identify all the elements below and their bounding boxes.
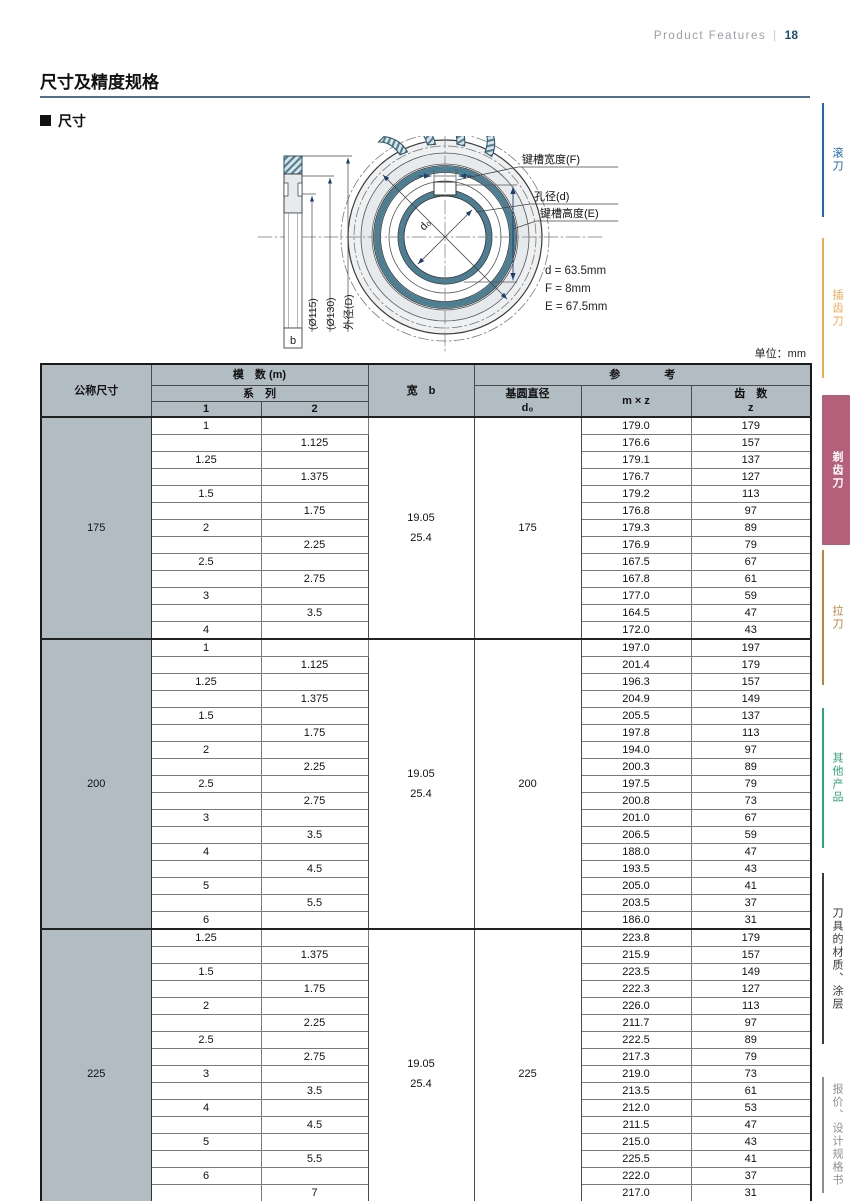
module-series1-cell: 4 [151, 1100, 261, 1117]
module-series1-cell [151, 1015, 261, 1032]
module-series1-cell: 1.5 [151, 486, 261, 503]
mxz-cell: 223.8 [581, 929, 691, 947]
module-series2-cell [261, 776, 368, 793]
module-series2-cell: 2.25 [261, 759, 368, 776]
header-series-1: 1 [151, 402, 261, 418]
module-series1-cell [151, 1117, 261, 1134]
table-row: 175119.0525.4175179.0179 [41, 417, 811, 435]
sidebar-tab[interactable]: 插齿刀 [822, 238, 850, 378]
module-series2-cell: 5.5 [261, 895, 368, 912]
teeth-count-cell: 179 [691, 417, 811, 435]
mxz-cell: 204.9 [581, 691, 691, 708]
module-series1-cell: 1.5 [151, 964, 261, 981]
module-series1-cell: 5 [151, 1134, 261, 1151]
teeth-count-cell: 41 [691, 878, 811, 895]
width-b-value: 19.05 [369, 511, 474, 525]
teeth-count-cell: 53 [691, 1100, 811, 1117]
teeth-count-cell: 113 [691, 998, 811, 1015]
teeth-count-cell: 47 [691, 605, 811, 622]
header-width-b: 宽 b [368, 364, 474, 417]
mxz-cell: 200.8 [581, 793, 691, 810]
module-series2-cell: 2.75 [261, 571, 368, 588]
module-series1-cell [151, 895, 261, 912]
teeth-count-cell: 59 [691, 827, 811, 844]
teeth-count-cell: 47 [691, 844, 811, 861]
teeth-count-cell: 197 [691, 639, 811, 657]
base-dia-cell: 175 [474, 417, 581, 639]
teeth-count-cell: 97 [691, 742, 811, 759]
sidebar-tab[interactable]: 刀具的材质、涂层 [822, 873, 850, 1044]
module-series2-cell [261, 622, 368, 640]
mxz-cell: 197.0 [581, 639, 691, 657]
module-series2-cell: 2.75 [261, 1049, 368, 1066]
teeth-count-cell: 137 [691, 452, 811, 469]
module-series2-cell [261, 554, 368, 571]
module-series1-cell [151, 691, 261, 708]
teeth-count-cell: 41 [691, 1151, 811, 1168]
module-series2-cell: 1.125 [261, 435, 368, 452]
mxz-cell: 167.8 [581, 571, 691, 588]
catalog-page: Product Features|18 尺寸及精度规格 尺寸 [0, 0, 850, 1201]
teeth-count-cell: 157 [691, 435, 811, 452]
module-series1-cell [151, 503, 261, 520]
mxz-cell: 201.4 [581, 657, 691, 674]
mxz-cell: 203.5 [581, 895, 691, 912]
base-dia-cell: 225 [474, 929, 581, 1201]
teeth-count-cell: 179 [691, 929, 811, 947]
mxz-cell: 188.0 [581, 844, 691, 861]
teeth-count-cell: 31 [691, 912, 811, 930]
module-series2-cell [261, 844, 368, 861]
module-series2-cell: 1.125 [261, 657, 368, 674]
module-series1-cell [151, 793, 261, 810]
page-number: 18 [785, 28, 798, 42]
value-F: F = 8mm [545, 283, 591, 295]
sidebar-tab[interactable]: 剃齿刀 [822, 395, 850, 545]
module-series2-cell: 3.5 [261, 827, 368, 844]
page-title: 尺寸及精度规格 [40, 68, 159, 93]
mxz-cell: 206.5 [581, 827, 691, 844]
module-series2-cell: 2.75 [261, 793, 368, 810]
width-b-value: 19.05 [369, 767, 474, 781]
teeth-count-cell: 43 [691, 1134, 811, 1151]
nominal-size-cell: 225 [41, 929, 151, 1201]
header-base-dia: 基圆直径 d₀ [474, 386, 581, 418]
mxz-cell: 179.2 [581, 486, 691, 503]
tab-label: 剃齿刀 [822, 451, 850, 490]
module-series2-cell: 5.5 [261, 1151, 368, 1168]
module-series1-cell: 6 [151, 1168, 261, 1185]
module-series1-cell [151, 981, 261, 998]
square-bullet-icon [40, 115, 51, 126]
module-series1-cell: 4 [151, 622, 261, 640]
module-series1-cell: 2 [151, 998, 261, 1015]
module-series1-cell [151, 605, 261, 622]
module-series1-cell: 3 [151, 1066, 261, 1083]
mxz-cell: 196.3 [581, 674, 691, 691]
module-series1-cell: 1.25 [151, 452, 261, 469]
header-mxz: m × z [581, 386, 691, 418]
module-series2-cell [261, 1168, 368, 1185]
header-divider: | [773, 30, 778, 42]
module-series2-cell [261, 417, 368, 435]
teeth-count-cell: 113 [691, 486, 811, 503]
teeth-count-cell: 79 [691, 1049, 811, 1066]
mxz-cell: 222.3 [581, 981, 691, 998]
module-series2-cell: 1.375 [261, 469, 368, 486]
mxz-cell: 211.5 [581, 1117, 691, 1134]
header-label: Product Features [654, 30, 766, 42]
teeth-count-cell: 31 [691, 1185, 811, 1201]
tab-accent-line [822, 103, 824, 217]
module-series1-cell: 3 [151, 588, 261, 605]
mxz-cell: 225.5 [581, 1151, 691, 1168]
mxz-cell: 201.0 [581, 810, 691, 827]
module-series1-cell [151, 1083, 261, 1100]
module-series1-cell [151, 435, 261, 452]
keyway-height-label: 键槽高度(E) [540, 206, 599, 220]
teeth-count-cell: 67 [691, 810, 811, 827]
tab-accent-line [822, 873, 824, 1044]
teeth-count-cell: 37 [691, 895, 811, 912]
module-series1-cell: 2.5 [151, 776, 261, 793]
module-series1-cell: 1 [151, 417, 261, 435]
mxz-cell: 226.0 [581, 998, 691, 1015]
width-b-cell: 19.0525.4 [368, 639, 474, 929]
teeth-count-cell: 73 [691, 793, 811, 810]
dim-130-label: (Ø130) [325, 297, 337, 330]
tab-label: 拉刀 [822, 605, 850, 631]
table-row: 200119.0525.4200197.0197 [41, 639, 811, 657]
tab-accent-line [822, 550, 824, 685]
module-series1-cell: 2.5 [151, 1032, 261, 1049]
module-series1-cell: 1.25 [151, 674, 261, 691]
module-series2-cell: 3.5 [261, 605, 368, 622]
module-series1-cell [151, 469, 261, 486]
tab-label: 刀具的材质、涂层 [822, 907, 850, 1011]
header-series-2: 2 [261, 402, 368, 418]
module-series2-cell [261, 998, 368, 1015]
module-series2-cell [261, 1032, 368, 1049]
section-heading-label: 尺寸 [58, 113, 86, 129]
mxz-cell: 193.5 [581, 861, 691, 878]
tab-label: 其他产品 [822, 752, 850, 804]
mxz-cell: 179.0 [581, 417, 691, 435]
module-series1-cell [151, 1151, 261, 1168]
module-series1-cell: 3 [151, 810, 261, 827]
module-series2-cell: 4.5 [261, 861, 368, 878]
section-heading: 尺寸 [40, 111, 86, 131]
teeth-count-cell: 137 [691, 708, 811, 725]
mxz-cell: 219.0 [581, 1066, 691, 1083]
teeth-count-cell: 157 [691, 947, 811, 964]
teeth-count-cell: 79 [691, 537, 811, 554]
module-series2-cell [261, 810, 368, 827]
teeth-count-cell: 37 [691, 1168, 811, 1185]
bore-dia-label: 孔径(d) [534, 190, 569, 203]
sidebar-tab[interactable]: 滚刀 [822, 103, 850, 217]
mxz-cell: 215.9 [581, 947, 691, 964]
tab-accent-line [822, 238, 824, 378]
module-series2-cell [261, 639, 368, 657]
nominal-size-cell: 175 [41, 417, 151, 639]
teeth-count-cell: 61 [691, 571, 811, 588]
mxz-cell: 217.0 [581, 1185, 691, 1201]
header-teeth-line2: z [692, 401, 811, 415]
width-b-cell: 19.0525.4 [368, 417, 474, 639]
keyway-width-label: 键槽宽度(F) [522, 152, 580, 166]
mxz-cell: 176.8 [581, 503, 691, 520]
header-series: 系 列 [151, 386, 368, 402]
module-series1-cell: 1.25 [151, 929, 261, 947]
module-series2-cell [261, 674, 368, 691]
module-series1-cell: 1 [151, 639, 261, 657]
module-series2-cell [261, 588, 368, 605]
table-section-175: 175119.0525.4175179.01791.125176.61571.2… [41, 417, 811, 639]
tab-label: 插齿刀 [822, 289, 850, 328]
module-series2-cell [261, 742, 368, 759]
teeth-count-cell: 179 [691, 657, 811, 674]
teeth-count-cell: 73 [691, 1066, 811, 1083]
teeth-count-cell: 47 [691, 1117, 811, 1134]
module-series2-cell [261, 486, 368, 503]
header-nominal: 公称尺寸 [41, 364, 151, 417]
mxz-cell: 223.5 [581, 964, 691, 981]
dimension-spec-table: 公称尺寸 模 数 (m) 宽 b 参 考 系 列 基圆直径 d₀ m × z 齿… [40, 363, 812, 1201]
module-series2-cell: 1.75 [261, 981, 368, 998]
module-series1-cell [151, 1049, 261, 1066]
table-section-225: 2251.2519.0525.4225223.81791.375215.9157… [41, 929, 811, 1201]
mxz-cell: 212.0 [581, 1100, 691, 1117]
module-series2-cell: 1.75 [261, 725, 368, 742]
page-header: Product Features|18 [654, 28, 798, 42]
teeth-count-cell: 67 [691, 554, 811, 571]
teeth-count-cell: 157 [691, 674, 811, 691]
mxz-cell: 194.0 [581, 742, 691, 759]
side-view: b (Ø115) (Ø130) 外径(D) [284, 156, 355, 348]
mxz-cell: 167.5 [581, 554, 691, 571]
mxz-cell: 179.3 [581, 520, 691, 537]
mxz-cell: 217.3 [581, 1049, 691, 1066]
table-section-200: 200119.0525.4200197.01971.125201.41791.2… [41, 639, 811, 929]
module-series1-cell [151, 1185, 261, 1201]
header-base-dia-line1: 基圆直径 [475, 387, 581, 401]
module-series2-cell [261, 520, 368, 537]
module-series2-cell: 2.25 [261, 537, 368, 554]
module-series1-cell [151, 725, 261, 742]
nominal-size-cell: 200 [41, 639, 151, 929]
header-module-group: 模 数 (m) [151, 364, 368, 386]
module-series1-cell: 2 [151, 742, 261, 759]
unit-label: 单位：mm [40, 345, 806, 361]
module-series2-cell [261, 708, 368, 725]
module-series2-cell: 1.75 [261, 503, 368, 520]
module-series1-cell [151, 657, 261, 674]
base-dia-cell: 200 [474, 639, 581, 929]
module-series2-cell: 7 [261, 1185, 368, 1201]
mxz-cell: 205.0 [581, 878, 691, 895]
mxz-cell: 211.7 [581, 1015, 691, 1032]
teeth-count-cell: 127 [691, 469, 811, 486]
module-series1-cell [151, 947, 261, 964]
teeth-count-cell: 113 [691, 725, 811, 742]
width-b-value: 25.4 [369, 787, 474, 801]
table-row: 2251.2519.0525.4225223.8179 [41, 929, 811, 947]
mxz-cell: 197.8 [581, 725, 691, 742]
mxz-cell: 176.6 [581, 435, 691, 452]
module-series2-cell: 1.375 [261, 947, 368, 964]
module-series2-cell [261, 452, 368, 469]
module-series2-cell: 4.5 [261, 1117, 368, 1134]
header-teeth-line1: 齿 数 [692, 387, 811, 401]
mxz-cell: 205.5 [581, 708, 691, 725]
sidebar-tab[interactable]: 其他产品 [822, 708, 850, 848]
dim-115-label: (Ø115) [307, 298, 319, 330]
module-series2-cell [261, 1066, 368, 1083]
module-series1-cell: 5 [151, 878, 261, 895]
teeth-count-cell: 89 [691, 1032, 811, 1049]
sidebar: 滚刀插齿刀剃齿刀拉刀其他产品刀具的材质、涂层报价、设计规格书 [810, 0, 850, 1201]
teeth-count-cell: 97 [691, 503, 811, 520]
sidebar-tab[interactable]: 拉刀 [822, 550, 850, 685]
teeth-count-cell: 127 [691, 981, 811, 998]
module-series2-cell: 1.375 [261, 691, 368, 708]
header-teeth: 齿 数 z [691, 386, 811, 418]
teeth-count-cell: 59 [691, 588, 811, 605]
module-series1-cell: 6 [151, 912, 261, 930]
title-underline [40, 96, 810, 98]
module-series2-cell [261, 964, 368, 981]
value-E: E = 67.5mm [545, 301, 607, 313]
teeth-count-cell: 149 [691, 691, 811, 708]
tab-accent-line [822, 1077, 824, 1193]
tab-label: 滚刀 [822, 147, 850, 173]
module-series2-cell: 2.25 [261, 1015, 368, 1032]
mxz-cell: 164.5 [581, 605, 691, 622]
width-b-value: 19.05 [369, 1057, 474, 1071]
module-series1-cell: 2 [151, 520, 261, 537]
module-series2-cell [261, 878, 368, 895]
header-base-dia-line2: d₀ [475, 401, 581, 415]
module-series1-cell [151, 759, 261, 776]
width-b-value: 25.4 [369, 531, 474, 545]
mxz-cell: 177.0 [581, 588, 691, 605]
width-b-value: 25.4 [369, 1077, 474, 1091]
module-series1-cell [151, 827, 261, 844]
value-d: d = 63.5mm [545, 265, 606, 277]
mxz-cell: 176.7 [581, 469, 691, 486]
teeth-count-cell: 79 [691, 776, 811, 793]
module-series1-cell: 4 [151, 844, 261, 861]
module-series1-cell: 1.5 [151, 708, 261, 725]
mxz-cell: 176.9 [581, 537, 691, 554]
mxz-cell: 213.5 [581, 1083, 691, 1100]
module-series2-cell [261, 1134, 368, 1151]
tab-label: 报价、设计规格书 [822, 1083, 850, 1187]
mxz-cell: 200.3 [581, 759, 691, 776]
mxz-cell: 172.0 [581, 622, 691, 640]
mxz-cell: 197.5 [581, 776, 691, 793]
module-series1-cell [151, 571, 261, 588]
mxz-cell: 215.0 [581, 1134, 691, 1151]
module-series2-cell [261, 1100, 368, 1117]
tab-accent-line [822, 708, 824, 848]
teeth-count-cell: 89 [691, 759, 811, 776]
module-series2-cell [261, 929, 368, 947]
outer-dia-label: 外径(D) [342, 294, 355, 330]
header-reference: 参 考 [474, 364, 811, 386]
mxz-cell: 179.1 [581, 452, 691, 469]
module-series2-cell: 3.5 [261, 1083, 368, 1100]
width-b-cell: 19.0525.4 [368, 929, 474, 1201]
mxz-cell: 186.0 [581, 912, 691, 930]
module-series1-cell: 2.5 [151, 554, 261, 571]
teeth-count-cell: 89 [691, 520, 811, 537]
mxz-cell: 222.5 [581, 1032, 691, 1049]
teeth-count-cell: 43 [691, 861, 811, 878]
teeth-count-cell: 61 [691, 1083, 811, 1100]
module-series1-cell [151, 861, 261, 878]
teeth-count-cell: 43 [691, 622, 811, 640]
teeth-count-cell: 97 [691, 1015, 811, 1032]
module-series2-cell [261, 912, 368, 930]
module-series1-cell [151, 537, 261, 554]
teeth-count-cell: 149 [691, 964, 811, 981]
sidebar-tab[interactable]: 报价、设计规格书 [822, 1077, 850, 1193]
gear-cutter-diagram: d₀ 键槽宽度(F) 孔径(d) 键槽高度(E) d = 63.5mm [250, 136, 650, 366]
mxz-cell: 222.0 [581, 1168, 691, 1185]
